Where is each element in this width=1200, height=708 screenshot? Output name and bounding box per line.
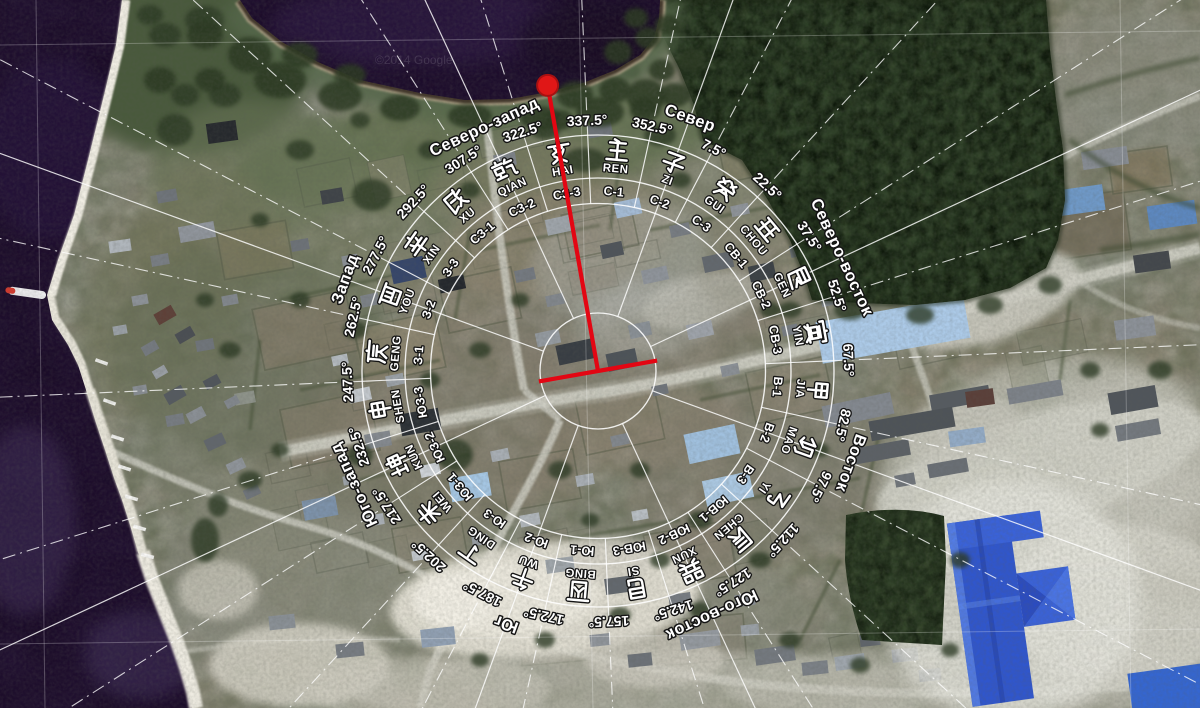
svg-text:REN: REN — [602, 162, 629, 176]
svg-text:З-1: З-1 — [411, 345, 427, 365]
svg-text:SI: SI — [626, 563, 640, 577]
svg-text:JIA: JIA — [793, 378, 807, 398]
svg-text:157.5°: 157.5° — [588, 613, 629, 631]
svg-text:67.5°: 67.5° — [840, 343, 857, 377]
svg-text:337.5°: 337.5° — [566, 111, 607, 129]
svg-text:В-1: В-1 — [769, 376, 785, 397]
svg-text:©2014 Google: ©2014 Google — [375, 53, 453, 67]
svg-text:247.5°: 247.5° — [338, 361, 356, 402]
svg-text:Ю-1: Ю-1 — [570, 542, 595, 558]
svg-text:С-1: С-1 — [603, 184, 624, 200]
